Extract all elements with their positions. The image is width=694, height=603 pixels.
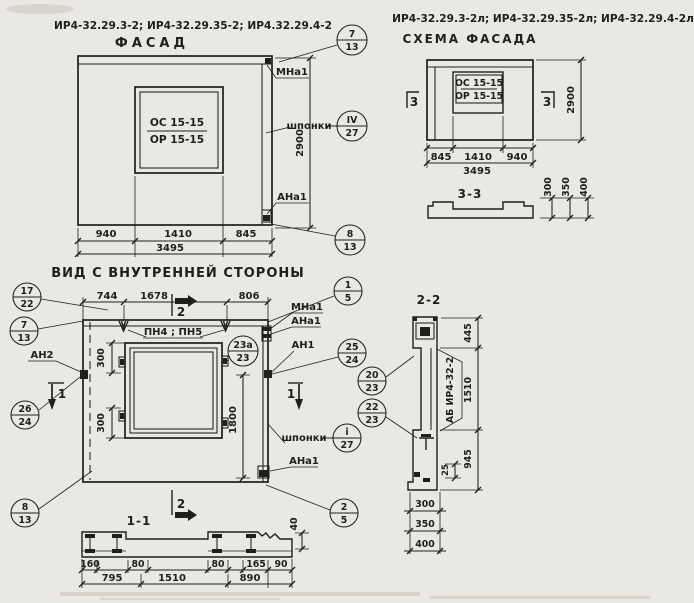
facade-label-ana1: АНа1 <box>267 192 309 214</box>
inner-side-view: ВИД С ВНУТРЕННЕЙ СТОРОНЫ 744 1678 806 2 <box>10 265 366 527</box>
schema-section-mark-right: 3 <box>541 92 554 109</box>
schema-title: СХЕМА ФАСАДА <box>403 32 538 46</box>
svg-text:22: 22 <box>20 299 33 310</box>
callout-2-5: 2 5 <box>266 485 358 527</box>
plan-label-ana1-bottom: АНа1 <box>270 456 319 471</box>
section-2-2-profile <box>408 317 437 490</box>
svg-text:7: 7 <box>349 29 356 40</box>
svg-text:300: 300 <box>543 177 554 197</box>
facade-label-mna1: МНа1 <box>267 65 309 78</box>
svg-text:744: 744 <box>97 291 118 302</box>
svg-text:2: 2 <box>177 305 185 319</box>
svg-text:13: 13 <box>18 515 31 526</box>
dim-845: 845 <box>236 229 257 240</box>
callout-25-24: 25 24 <box>272 339 366 374</box>
callout-17-22: 17 22 <box>13 283 108 311</box>
facade-height-dim: 2900 <box>275 55 316 231</box>
svg-text:27: 27 <box>340 440 353 451</box>
svg-text:80: 80 <box>131 559 145 570</box>
section-2-2-title: 2-2 <box>417 293 442 307</box>
svg-text:160: 160 <box>80 559 100 570</box>
svg-text:АНа1: АНа1 <box>277 192 307 203</box>
plan-section-mark-2-top: 2 <box>172 294 197 319</box>
callout-8-13-facade: 8 13 <box>271 224 365 255</box>
schema-codes: ИР4-32.29.3-2л; ИР4-32.29.35-2л; ИР4-32.… <box>392 13 694 25</box>
section-1-1-title: 1-1 <box>127 514 152 528</box>
svg-text:1410: 1410 <box>464 152 492 163</box>
plan-dim-300-bottom: 300 <box>96 405 125 441</box>
svg-text:17: 17 <box>20 286 33 297</box>
dim-940: 940 <box>96 229 117 240</box>
facade-title: ФАСАД <box>115 36 189 51</box>
facade-view: ИР4-32.29.3-2; ИР4-32.29.35-2; ИР4.32.29… <box>54 20 367 257</box>
svg-text:3: 3 <box>543 95 551 109</box>
svg-text:90: 90 <box>274 559 288 570</box>
svg-text:АН1: АН1 <box>291 340 314 351</box>
svg-text:13: 13 <box>345 42 358 53</box>
schema-section-mark-left: 3 <box>407 92 419 109</box>
svg-text:7: 7 <box>21 320 28 331</box>
svg-text:2: 2 <box>341 502 348 513</box>
svg-text:шпонки: шпонки <box>281 433 326 444</box>
svg-text:шпонки: шпонки <box>286 121 331 132</box>
svg-text:20: 20 <box>365 370 379 381</box>
svg-text:165: 165 <box>246 559 266 570</box>
dim-3495: 3495 <box>156 243 184 254</box>
svg-text:IV: IV <box>347 115 358 126</box>
callout-22-23: 22 23 <box>358 399 417 438</box>
svg-text:АНа1: АНа1 <box>291 316 321 327</box>
plan-top-dims: 744 1678 806 <box>80 291 271 320</box>
svg-text:23: 23 <box>365 383 378 394</box>
svg-text:АН2: АН2 <box>30 350 53 361</box>
svg-text:13: 13 <box>343 242 356 253</box>
svg-text:27: 27 <box>345 128 358 139</box>
plan-dim-300-top: 300 <box>96 340 125 376</box>
svg-text:80: 80 <box>211 559 225 570</box>
callout-IV-27-shponki: IV 27 <box>328 111 367 141</box>
plan-title: ВИД С ВНУТРЕННЕЙ СТОРОНЫ <box>51 265 304 281</box>
svg-text:300: 300 <box>96 413 107 433</box>
plan-section-mark-1-right: 1 <box>287 383 303 410</box>
svg-text:2: 2 <box>177 497 185 511</box>
svg-text:300: 300 <box>415 499 435 510</box>
dim-1410: 1410 <box>164 229 192 240</box>
section-3-3-profile <box>428 202 533 218</box>
svg-text:ОР 15-15: ОР 15-15 <box>455 91 503 102</box>
svg-text:24: 24 <box>18 417 32 428</box>
svg-text:1510: 1510 <box>158 573 186 584</box>
callout-7-13-plan: 7 13 <box>10 317 83 345</box>
plan-label-an1: АН1 <box>272 340 315 372</box>
plan-window-block <box>119 343 228 438</box>
dim-2900: 2900 <box>295 129 306 157</box>
svg-text:8: 8 <box>22 502 29 513</box>
callout-i-27: i 27 <box>324 424 361 452</box>
plan-section-mark-2-bottom: 2 <box>172 490 197 521</box>
section-2-2: 2-2 АБ ИР4-32-2 445 1510 945 <box>358 293 483 554</box>
window-mark-top: ОС 15-15 <box>150 117 204 129</box>
svg-text:i: i <box>345 427 348 438</box>
svg-text:АБ ИР4-32-2: АБ ИР4-32-2 <box>445 357 456 423</box>
svg-text:1: 1 <box>345 280 352 291</box>
section-1-1-channels <box>85 534 256 553</box>
callout-26-24: 26 24 <box>11 377 80 429</box>
window-mark-bottom: ОР 15-15 <box>150 134 204 146</box>
blueprint-scan: { "page": { "paper_color": "#eae8e2", "i… <box>0 0 694 603</box>
svg-text:940: 940 <box>507 152 528 163</box>
facade-bottom-dims: 940 1410 845 3495 <box>75 176 275 257</box>
section-1-1: 1-1 160 80 80 165 90 795 1510 890 <box>79 514 309 588</box>
svg-text:26: 26 <box>18 404 32 415</box>
svg-text:1: 1 <box>287 387 295 401</box>
svg-text:890: 890 <box>240 573 261 584</box>
svg-text:806: 806 <box>239 291 260 302</box>
svg-text:3: 3 <box>410 95 418 109</box>
svg-text:23: 23 <box>236 353 249 364</box>
plan-label-ana1-top: АНа1 <box>271 316 321 334</box>
schema-facade-view: ИР4-32.29.3-2л; ИР4-32.29.35-2л; ИР4-32.… <box>392 13 694 177</box>
svg-text:5: 5 <box>345 293 352 304</box>
svg-text:1678: 1678 <box>140 291 168 302</box>
svg-text:40: 40 <box>289 517 300 531</box>
svg-text:24: 24 <box>345 355 359 366</box>
svg-text:445: 445 <box>463 323 474 343</box>
schema-window: ОС 15-15 ОР 15-15 <box>453 72 503 113</box>
plan-label-shponki: шпонки <box>268 424 327 444</box>
facade-label-shponki: шпонки <box>266 121 332 133</box>
panel-working-drawing: ИР4-32.29.3-2; ИР4-32.29.35-2; ИР4.32.29… <box>0 0 694 603</box>
section-3-3-dims: 300 350 400 <box>540 177 594 221</box>
svg-text:5: 5 <box>341 515 348 526</box>
svg-text:400: 400 <box>579 177 590 197</box>
plan-section-mark-1-left: 1 <box>48 383 66 410</box>
facade-window-opening: ОС 15-15 ОР 15-15 <box>135 87 223 173</box>
svg-text:795: 795 <box>102 573 123 584</box>
svg-text:25: 25 <box>441 464 451 476</box>
schema-bottom-dims: 845 1410 940 3495 <box>424 116 536 177</box>
section-1-1-dims: 160 80 80 165 90 795 1510 890 <box>79 559 295 588</box>
section-2-2-dim-25: 25 <box>441 461 461 481</box>
svg-text:25: 25 <box>345 342 358 353</box>
svg-text:ОС 15-15: ОС 15-15 <box>455 78 503 89</box>
svg-text:945: 945 <box>463 449 474 469</box>
svg-text:300: 300 <box>96 348 107 368</box>
svg-text:1800: 1800 <box>228 406 239 434</box>
svg-text:845: 845 <box>431 152 452 163</box>
svg-text:400: 400 <box>415 539 435 550</box>
callout-8-13-plan: 8 13 <box>11 471 92 527</box>
svg-text:МНа1: МНа1 <box>276 67 308 78</box>
svg-text:АНа1: АНа1 <box>289 456 319 467</box>
facade-codes: ИР4-32.29.3-2; ИР4-32.29.35-2; ИР4.32.29… <box>54 20 332 32</box>
svg-text:350: 350 <box>415 519 435 530</box>
svg-text:23: 23 <box>365 415 378 426</box>
svg-text:350: 350 <box>561 177 572 197</box>
plan-label-an2: АН2 <box>28 350 81 372</box>
svg-text:8: 8 <box>347 229 354 240</box>
svg-text:3495: 3495 <box>463 166 491 177</box>
svg-text:13: 13 <box>17 333 30 344</box>
section-2-2-bottom-dims: 300 350 400 <box>404 492 446 554</box>
svg-text:1510: 1510 <box>463 376 474 403</box>
svg-text:ПН4 ; ПН5: ПН4 ; ПН5 <box>144 327 202 338</box>
svg-text:22: 22 <box>365 402 378 413</box>
svg-text:2900: 2900 <box>566 86 577 114</box>
svg-text:23а: 23а <box>233 340 252 351</box>
callout-20-23: 20 23 <box>358 356 414 395</box>
plan-dim-1800: 1800 <box>228 372 250 481</box>
section-3-3-title: 3-3 <box>458 187 483 201</box>
section-3-3: 3-3 300 350 400 <box>428 177 594 221</box>
section-2-2-block-label: АБ ИР4-32-2 <box>437 349 462 431</box>
plan-label-pn: ПН4 ; ПН5 <box>128 327 224 338</box>
